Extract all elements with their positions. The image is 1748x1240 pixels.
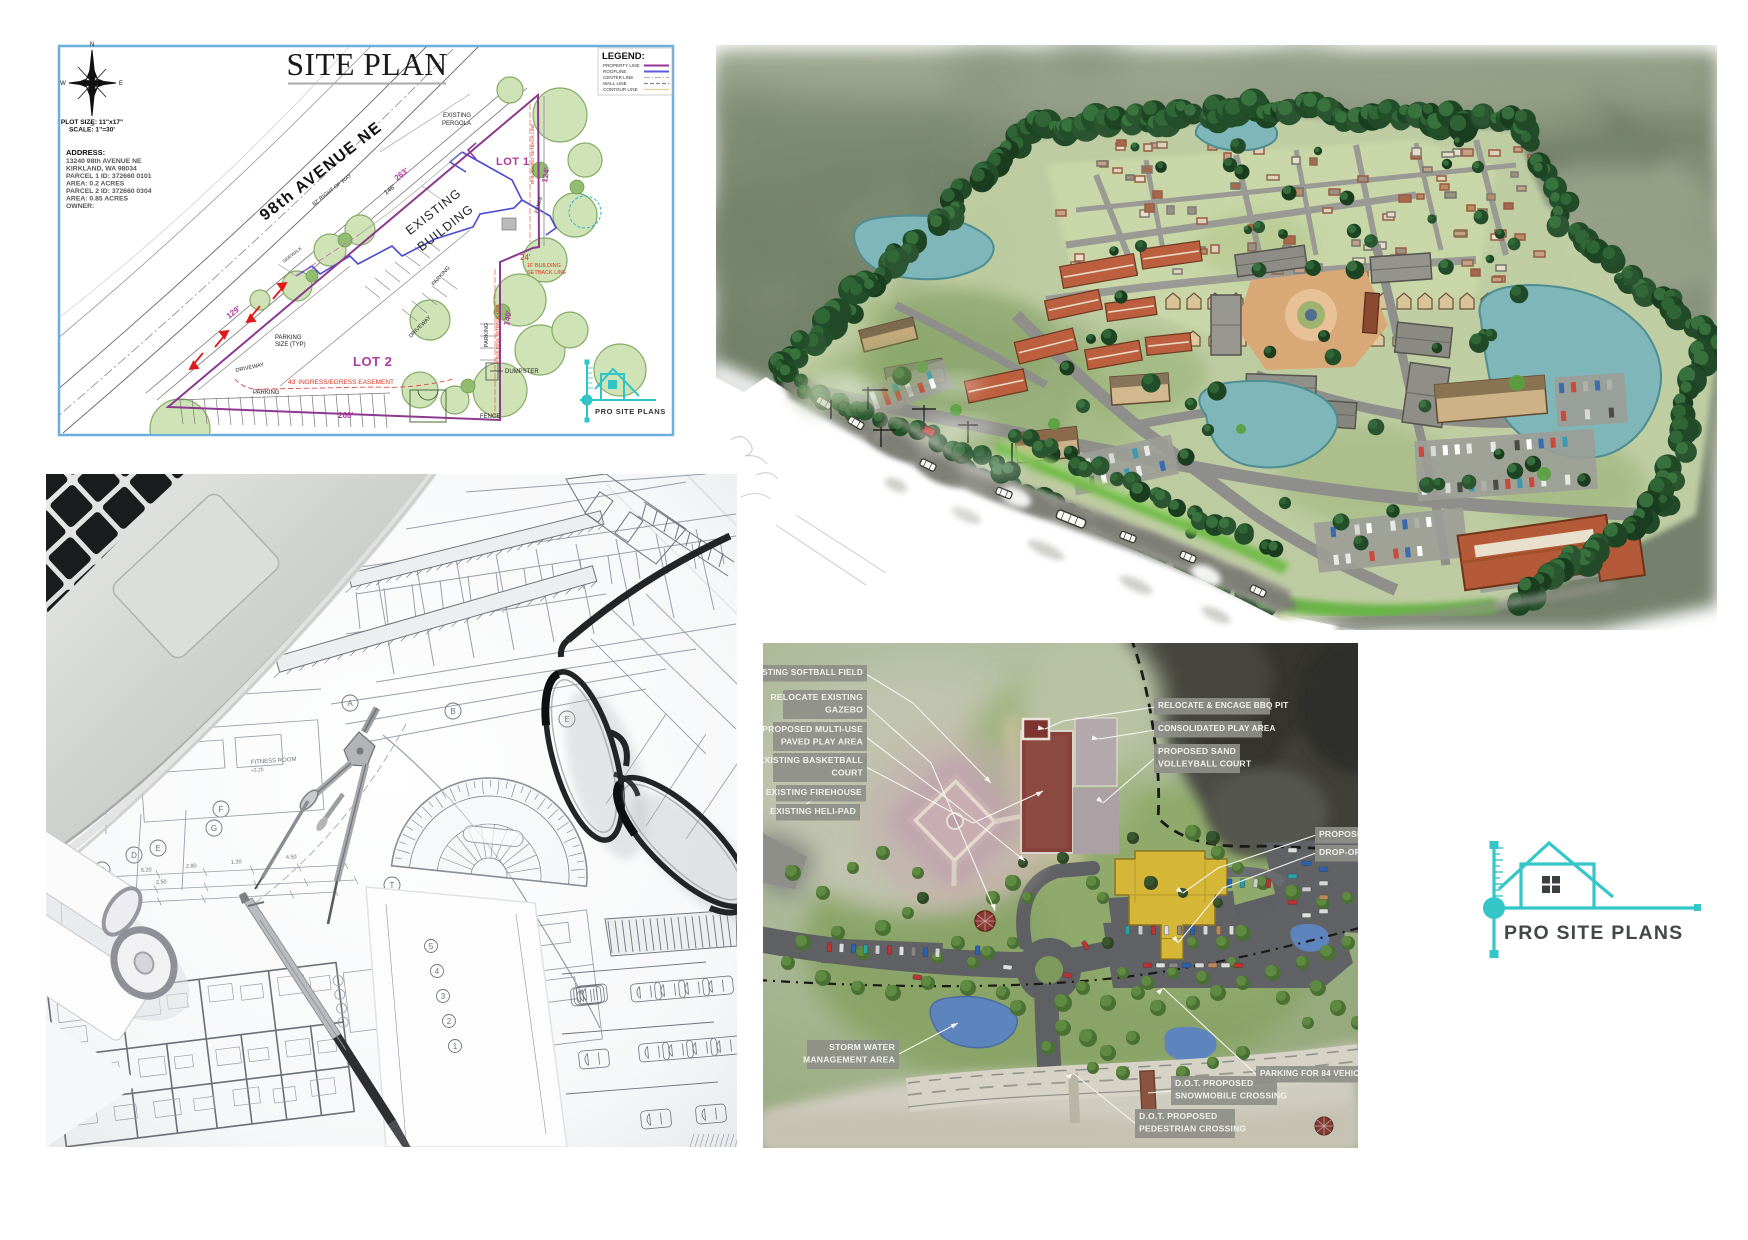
svg-text:PLOT SIZE: 11"x17": PLOT SIZE: 11"x17" [61, 119, 123, 126]
svg-text:LOT 2: LOT 2 [353, 354, 392, 369]
svg-text:GAZEBO: GAZEBO [825, 705, 863, 715]
svg-text:24': 24' [520, 253, 531, 262]
svg-text:5: 5 [429, 942, 434, 951]
svg-text:WALL LINE: WALL LINE [603, 81, 627, 86]
svg-text:2: 2 [447, 1017, 452, 1026]
svg-text:FENCE: FENCE [480, 414, 500, 420]
svg-text:CENTER LINE: CENTER LINE [603, 75, 633, 80]
svg-text:KIRKLAND, WA 98034: KIRKLAND, WA 98034 [66, 166, 137, 173]
svg-text:EXISTING: EXISTING [443, 113, 471, 119]
svg-text:PARCEL 2 ID: 372660 0304: PARCEL 2 ID: 372660 0304 [66, 188, 152, 195]
svg-text:SCALE: 1"=30': SCALE: 1"=30' [69, 127, 115, 134]
svg-text:3: 3 [441, 992, 446, 1001]
svg-text:1.20: 1.20 [231, 859, 242, 866]
svg-text:CONSOLIDATED PLAY AREA: CONSOLIDATED PLAY AREA [1158, 724, 1276, 733]
svg-text:13240 98th AVENUE NE: 13240 98th AVENUE NE [66, 158, 142, 165]
svg-text:43' INGRESS/EGRESS EASEMENT: 43' INGRESS/EGRESS EASEMENT [288, 379, 394, 386]
svg-text:COURT: COURT [831, 768, 863, 778]
svg-text:SIZE (TYP): SIZE (TYP) [275, 342, 306, 348]
svg-text:E: E [155, 844, 160, 853]
svg-text:F: F [219, 805, 224, 814]
svg-text:VOLLEYBALL COURT: VOLLEYBALL COURT [1158, 759, 1252, 769]
svg-text:+3.20: +3.20 [251, 767, 264, 774]
svg-text:W BUILDING SETBACK LINE: W BUILDING SETBACK LINE [530, 124, 535, 184]
svg-text:PRO SITE PLANS: PRO SITE PLANS [1504, 922, 1683, 944]
svg-text:1: 1 [453, 1042, 458, 1051]
svg-text:W: W [60, 81, 66, 87]
svg-text:EXISTING HELI-PAD: EXISTING HELI-PAD [770, 806, 856, 816]
svg-text:STORM WATER: STORM WATER [829, 1042, 895, 1052]
svg-text:MANAGEMENT AREA: MANAGEMENT AREA [803, 1055, 895, 1065]
svg-text:D.O.T. PROPOSED: D.O.T. PROPOSED [1175, 1078, 1253, 1088]
svg-text:PAVED PLAY AREA: PAVED PLAY AREA [781, 737, 863, 747]
svg-text:B: B [450, 707, 455, 716]
svg-text:6.20: 6.20 [141, 867, 152, 874]
svg-text:OWNER:: OWNER: [66, 203, 94, 210]
svg-text:4.50: 4.50 [286, 854, 297, 861]
svg-text:E BUILDING SETBACK LINE: E BUILDING SETBACK LINE [495, 304, 500, 363]
svg-text:EXISTING BASKETBALL: EXISTING BASKETBALL [763, 755, 863, 765]
svg-text:CONTOUR LINE: CONTOUR LINE [603, 87, 638, 92]
svg-text:LOT 1: LOT 1 [496, 156, 530, 168]
svg-text:AREA: 0.2 ACRES: AREA: 0.2 ACRES [66, 181, 125, 188]
svg-text:2.50: 2.50 [156, 879, 167, 886]
svg-text:N: N [90, 42, 94, 48]
svg-text:ROOFLINE: ROOFLINE [603, 69, 626, 74]
svg-text:EXISTING SOFTBALL FIELD: EXISTING SOFTBALL FIELD [763, 668, 863, 677]
svg-text:4: 4 [435, 967, 440, 976]
svg-text:DROP-OFF: DROP-OFF [1319, 847, 1358, 857]
svg-text:D.O.T. PROPOSED: D.O.T. PROPOSED [1139, 1111, 1217, 1121]
svg-text:RELOCATE EXISTING: RELOCATE EXISTING [770, 692, 863, 702]
svg-text:PEDESTRIAN CROSSING: PEDESTRIAN CROSSING [1139, 1124, 1247, 1134]
svg-text:A: A [347, 699, 353, 708]
svg-text:PERGOLA: PERGOLA [442, 121, 471, 127]
svg-text:2.80: 2.80 [186, 863, 197, 870]
svg-text:PARKING: PARKING [275, 335, 302, 341]
svg-text:ADDRESS:: ADDRESS: [66, 148, 105, 157]
svg-text:PARKING: PARKING [484, 323, 490, 347]
svg-text:PROPOSED SAND: PROPOSED SAND [1158, 746, 1236, 756]
svg-text:AREA: 0.85 ACRES: AREA: 0.85 ACRES [66, 196, 129, 203]
svg-text:D: D [131, 851, 137, 860]
svg-text:LEGEND:: LEGEND: [602, 51, 645, 62]
svg-text:SETBACK LINE: SETBACK LINE [527, 270, 567, 276]
svg-text:1F BUILDING: 1F BUILDING [527, 263, 561, 269]
svg-text:PRO SITE PLANS: PRO SITE PLANS [595, 407, 666, 416]
svg-text:SNOWMOBILE CROSSING: SNOWMOBILE CROSSING [1175, 1091, 1287, 1101]
svg-text:E: E [119, 81, 123, 87]
svg-text:G: G [211, 824, 217, 833]
svg-text:PARCEL 1 ID: 372660 0101: PARCEL 1 ID: 372660 0101 [66, 173, 152, 180]
svg-text:PROPOSED MULTI-USE: PROPOSED MULTI-USE [763, 724, 863, 734]
svg-text:SITE PLAN: SITE PLAN [286, 47, 447, 82]
svg-text:EXISTING FIREHOUSE: EXISTING FIREHOUSE [766, 787, 862, 797]
svg-text:PROPOSED: PROPOSED [1319, 829, 1358, 839]
svg-text:RELOCATE & ENCAGE BBQ PIT: RELOCATE & ENCAGE BBQ PIT [1158, 701, 1288, 710]
svg-text:PARKING: PARKING [253, 390, 280, 396]
svg-text:PROPERTY LINE: PROPERTY LINE [603, 63, 640, 68]
svg-text:266': 266' [338, 411, 353, 420]
svg-text:DUMPSTER: DUMPSTER [505, 369, 539, 375]
